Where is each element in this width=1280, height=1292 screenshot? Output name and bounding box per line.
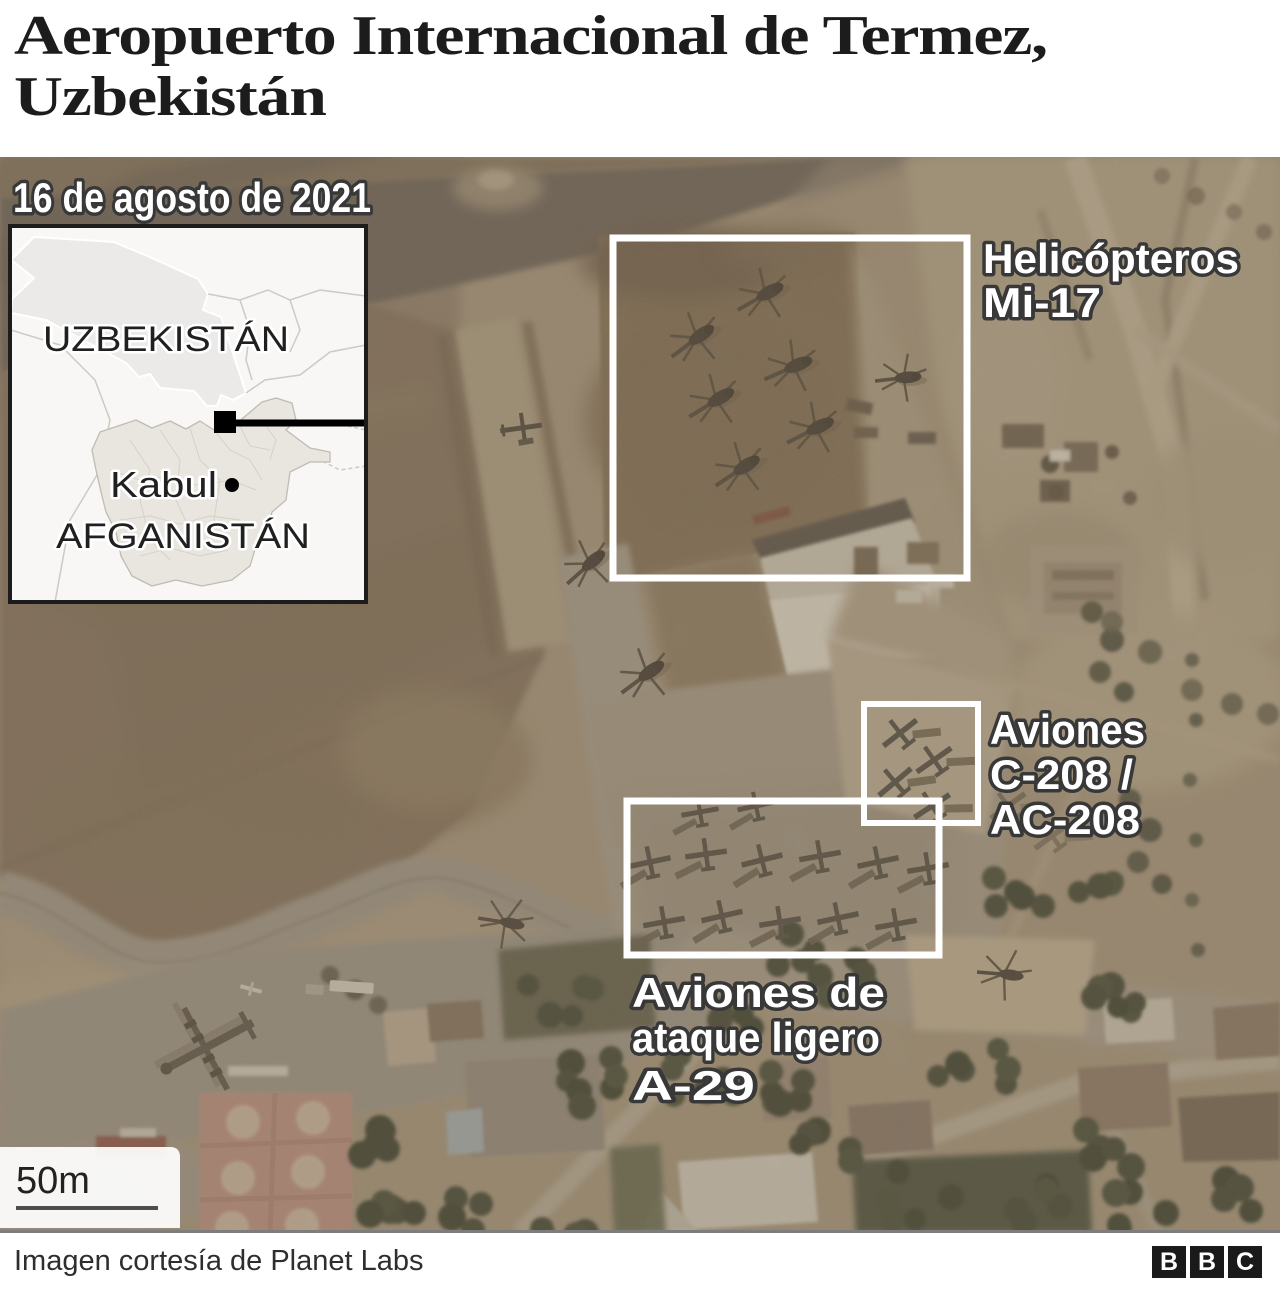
svg-text:16 de agosto de 2021: 16 de agosto de 2021 (13, 174, 371, 221)
svg-text:AC-208: AC-208 (990, 796, 1140, 843)
svg-text:UZBEKISTÁN: UZBEKISTÁN (43, 320, 289, 359)
svg-text:AFGANISTÁN: AFGANISTÁN (56, 517, 310, 556)
svg-text:Aviones: Aviones (990, 706, 1145, 753)
svg-text:Aviones de: Aviones de (632, 969, 885, 1016)
svg-text:Helicópteros: Helicópteros (983, 235, 1239, 282)
svg-text:ataque ligero: ataque ligero (632, 1014, 880, 1061)
svg-text:Kabul: Kabul (110, 464, 217, 505)
svg-text:50m: 50m (16, 1160, 90, 1202)
svg-text:C-208 /: C-208 / (990, 751, 1133, 798)
svg-text:A-29: A-29 (632, 1062, 755, 1109)
svg-text:Mi-17: Mi-17 (983, 279, 1101, 326)
